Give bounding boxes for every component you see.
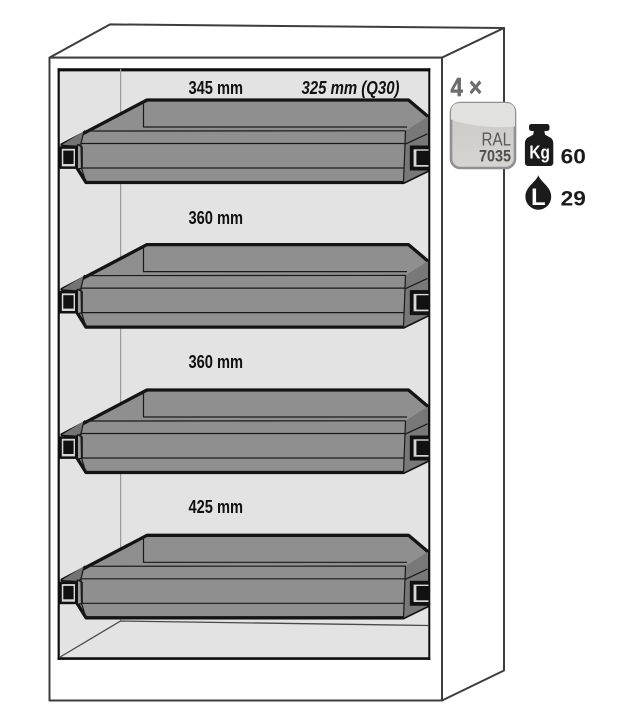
svg-text:60: 60: [561, 146, 586, 169]
svg-text:29: 29: [561, 187, 586, 210]
svg-text:L: L: [531, 184, 546, 211]
svg-text:345 mm: 345 mm: [189, 77, 244, 98]
svg-text:360 mm: 360 mm: [189, 207, 244, 228]
svg-text:360 mm: 360 mm: [189, 351, 244, 372]
svg-text:4 ×: 4 ×: [451, 74, 483, 102]
svg-text:Kg: Kg: [529, 142, 550, 163]
svg-text:425 mm: 425 mm: [189, 496, 244, 517]
svg-text:325 mm (Q30): 325 mm (Q30): [302, 77, 400, 98]
svg-text:7035: 7035: [479, 147, 511, 166]
